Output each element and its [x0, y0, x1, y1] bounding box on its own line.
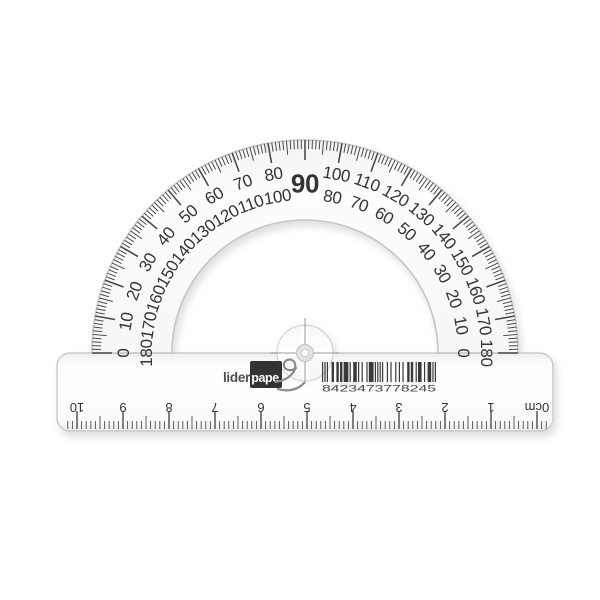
- outer-degree-label: 10: [115, 311, 137, 332]
- apex-90-label: 90: [291, 168, 319, 198]
- product-photo: 0102030405060708010011012013014015016017…: [0, 0, 600, 600]
- crosshair-center-dot: [302, 350, 309, 357]
- inner-degree-label: 80: [322, 186, 343, 208]
- cm-label: 6: [257, 400, 264, 415]
- degree-tick: [290, 141, 291, 150]
- inner-degree-label: 10: [450, 315, 472, 336]
- inner-degree-label: 180: [137, 339, 156, 366]
- protractor-photo-canvas: 0102030405060708010011012013014015016017…: [0, 0, 600, 600]
- inner-degree-label: 0: [454, 348, 473, 357]
- cm-label: 0cm: [525, 400, 550, 415]
- degree-tick: [509, 338, 518, 339]
- barcode-digits: 8423473778245: [322, 384, 436, 394]
- brand-box-text: pape: [251, 371, 279, 385]
- degree-tick: [93, 338, 102, 339]
- cm-label: 4: [349, 400, 356, 415]
- cm-label: 3: [395, 400, 402, 415]
- cm-label: 8: [165, 400, 172, 415]
- cm-label: 5: [303, 400, 310, 415]
- apex-degree-label: 90: [291, 168, 319, 198]
- outer-degree-label: 0: [114, 348, 133, 357]
- cm-label: 9: [119, 400, 126, 415]
- degree-tick: [319, 141, 320, 150]
- outer-degree-label: 80: [263, 163, 284, 185]
- brand-prefix: lider: [223, 370, 251, 385]
- cm-label: 1: [487, 400, 494, 415]
- cm-label: 10: [70, 400, 84, 415]
- cm-label: 2: [441, 400, 448, 415]
- cm-label: 7: [211, 400, 218, 415]
- outer-degree-label: 180: [477, 339, 496, 366]
